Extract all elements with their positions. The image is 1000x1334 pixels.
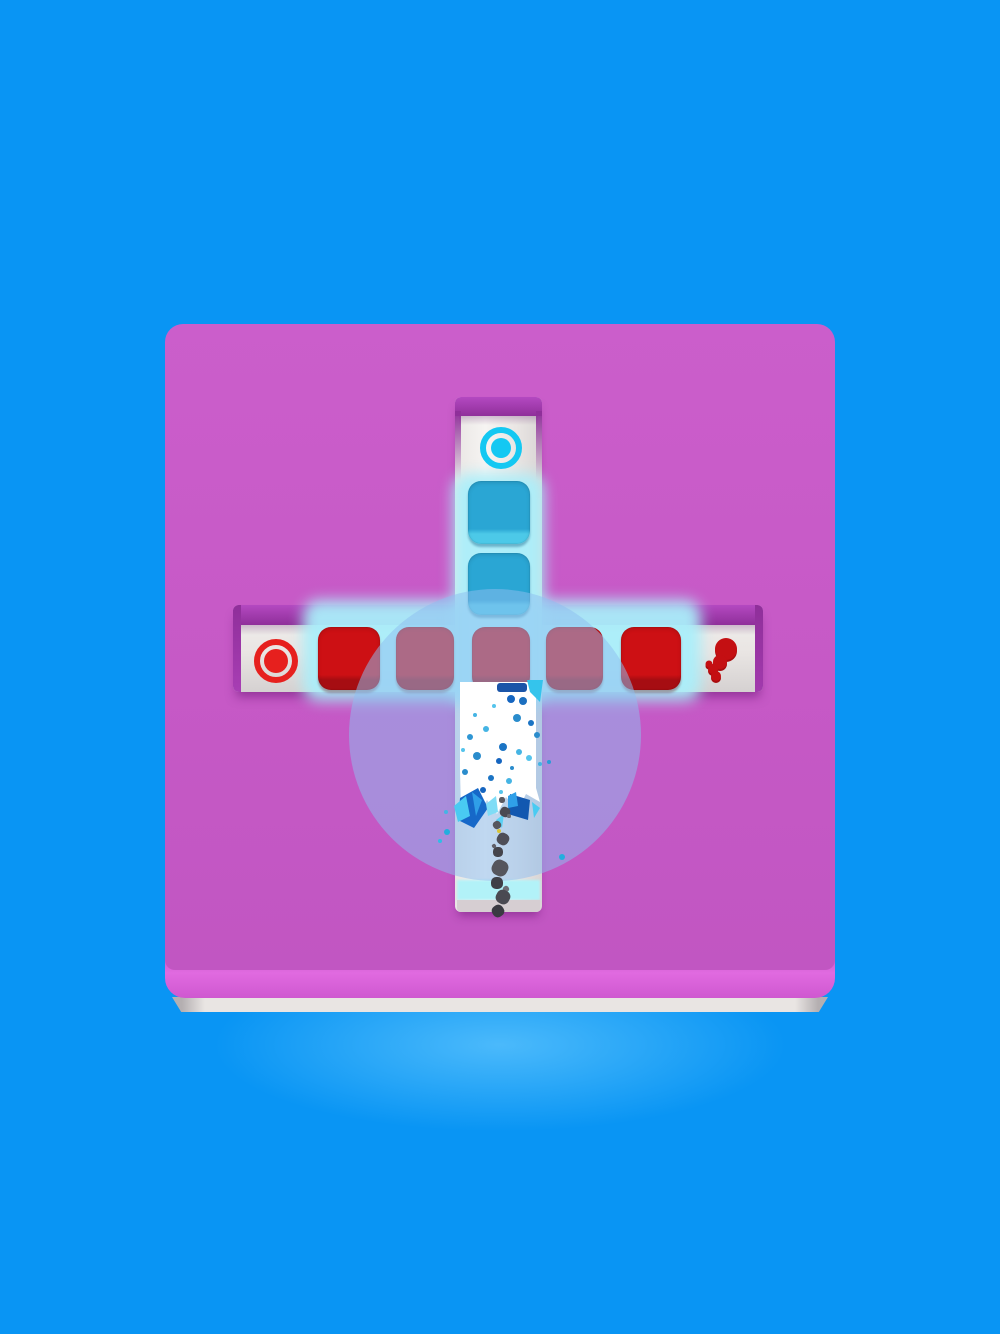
splat-blob: [711, 671, 721, 681]
groove-left-wall: [233, 605, 241, 692]
splat-blob: [706, 661, 713, 668]
groove-right-wall: [755, 605, 763, 692]
board-base: [172, 997, 828, 1012]
blue-crystals: [452, 786, 546, 834]
crystal-shard: [486, 796, 498, 816]
game-viewport: [0, 0, 1000, 1334]
groove-top-lip: [455, 397, 542, 416]
crystal-shard: [508, 792, 518, 808]
crystal-shard: [496, 814, 504, 828]
groove-lip-shadow: [459, 416, 538, 425]
red-paint-splat-icon: [700, 630, 750, 690]
groove-right-wall: [536, 411, 542, 481]
puzzle-board: [165, 324, 835, 970]
groove-left-wall: [455, 411, 461, 481]
crystal-shard: [532, 802, 540, 818]
groove-end-cap: [457, 900, 540, 912]
groove-cyan-band: [457, 880, 540, 900]
